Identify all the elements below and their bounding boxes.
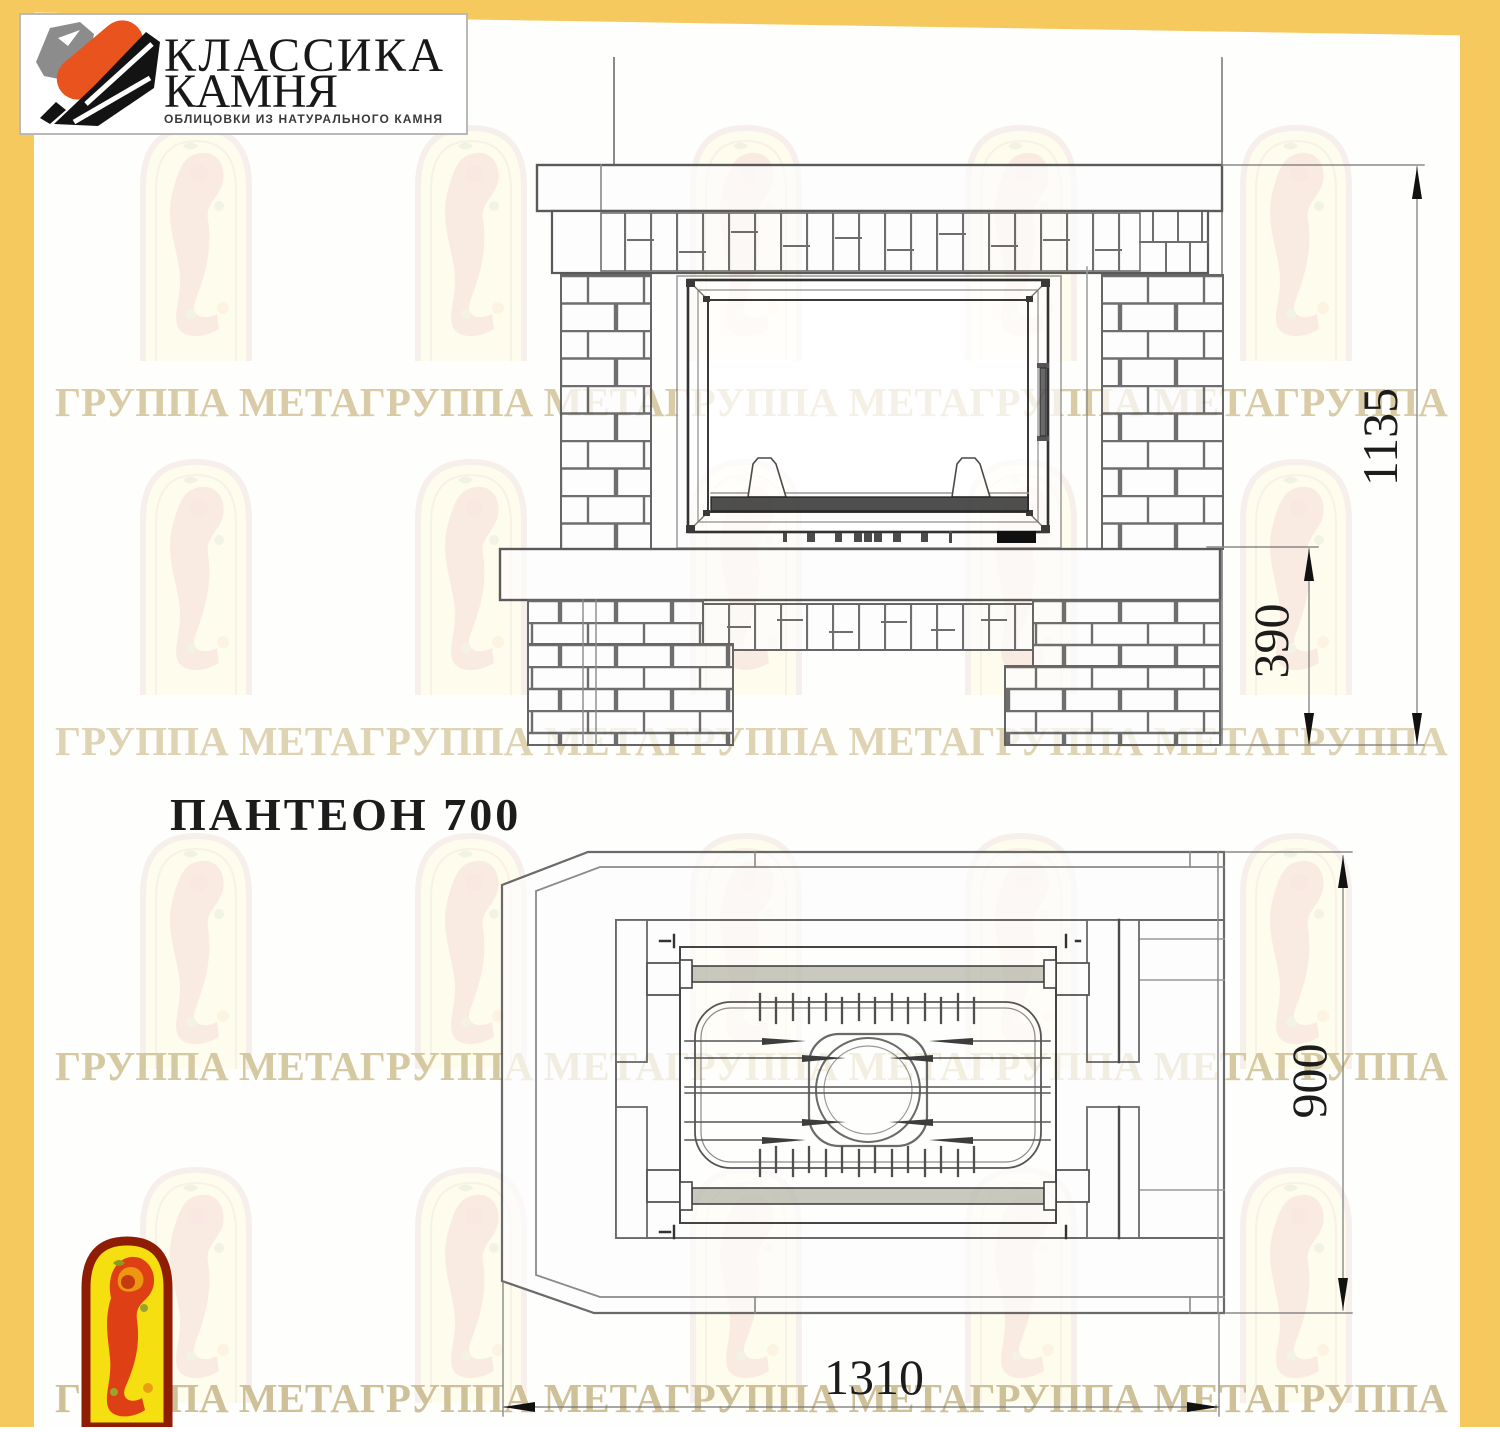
svg-text:ОБЛИЦОВКИ ИЗ НАТУРАЛЬНОГО КАМН: ОБЛИЦОВКИ ИЗ НАТУРАЛЬНОГО КАМНЯ <box>164 112 442 126</box>
svg-text:ПАНТЕОН 700: ПАНТЕОН 700 <box>170 789 521 840</box>
svg-text:КАМНЯ: КАМНЯ <box>164 65 344 118</box>
